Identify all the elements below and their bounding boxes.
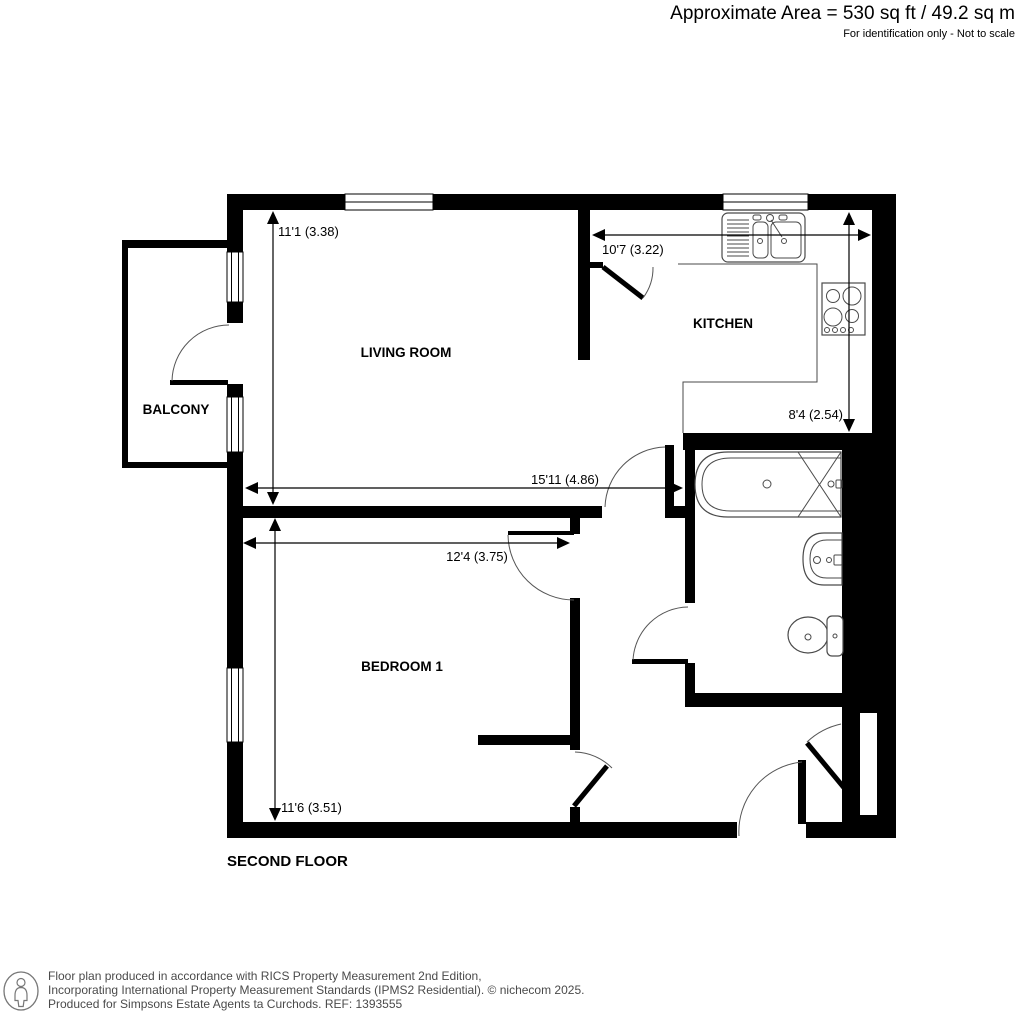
- dimension-living-width: [245, 482, 683, 494]
- wall: [570, 598, 580, 750]
- bedroom-label: BEDROOM 1: [361, 659, 443, 674]
- dimension-bedroom-depth: [269, 518, 281, 821]
- door-swing-arc: [172, 325, 229, 381]
- kitchen-label: KITCHEN: [693, 316, 753, 331]
- wall: [478, 735, 572, 745]
- door-swing-arc: [633, 607, 688, 660]
- toilet: [788, 616, 843, 656]
- wall: [570, 807, 580, 822]
- kitchen-door: [603, 267, 653, 298]
- door-swing-arc: [739, 762, 802, 836]
- wall: [683, 433, 872, 450]
- bedroom-width-label: 12'4 (3.75): [446, 549, 508, 564]
- person-icon: [2, 971, 42, 1013]
- balcony-outline: [122, 240, 227, 468]
- floor-plan: LIVING ROOM KITCHEN BALCONY BEDROOM 1 SE…: [0, 0, 1024, 1020]
- door-swing-arc: [605, 447, 665, 507]
- door-leaf: [170, 380, 228, 385]
- wall: [872, 194, 896, 444]
- kitchen-sink: [722, 213, 805, 262]
- hob: [822, 283, 865, 335]
- living-depth-label: 11'1 (3.38): [278, 224, 339, 239]
- window: [227, 668, 243, 742]
- door-leaf: [574, 766, 607, 806]
- wall: [808, 194, 872, 210]
- balcony-label: BALCONY: [143, 402, 210, 417]
- bathroom-door: [632, 607, 688, 664]
- wall: [806, 822, 896, 838]
- kitchen-width-label: 10'7 (3.22): [602, 242, 664, 257]
- footer-line-3: Produced for Simpsons Estate Agents ta C…: [48, 997, 584, 1011]
- wall: [243, 506, 602, 518]
- kitchen-depth-label: 8'4 (2.54): [788, 407, 843, 422]
- bedroom-entry-door: [574, 752, 612, 806]
- wall: [578, 210, 590, 360]
- wall: [685, 693, 847, 707]
- door-leaf: [665, 445, 674, 509]
- wall: [227, 194, 345, 210]
- door-swing-arc: [643, 267, 653, 298]
- entrance-door: [739, 760, 806, 836]
- door-swing-arc: [807, 724, 841, 742]
- kitchen-door-jamb: [590, 262, 603, 268]
- dimension-living-depth: [267, 211, 279, 505]
- wall: [685, 450, 695, 603]
- footer-line-2: Incorporating International Property Mea…: [48, 983, 584, 997]
- bath: [695, 452, 842, 517]
- wall: [227, 194, 243, 252]
- wall: [227, 452, 243, 668]
- balcony-door: [170, 325, 229, 385]
- wall: [685, 663, 695, 693]
- window: [227, 397, 243, 452]
- wall: [227, 302, 243, 323]
- window: [723, 194, 808, 210]
- dimension-bedroom-width: [243, 537, 570, 549]
- bedroom-depth-label: 11'6 (3.51): [281, 800, 342, 815]
- wall: [227, 384, 243, 397]
- living-room-label: LIVING ROOM: [361, 345, 452, 360]
- footer-disclaimer: Floor plan produced in accordance with R…: [48, 969, 584, 1011]
- door-leaf: [632, 659, 688, 664]
- cupboard-niche: [860, 713, 877, 815]
- window: [345, 194, 433, 210]
- wall: [227, 822, 737, 838]
- wall: [433, 194, 723, 210]
- floor-label: SECOND FLOOR: [227, 853, 348, 870]
- window: [227, 252, 243, 302]
- basin: [803, 533, 842, 585]
- living-width-label: 15'11 (4.86): [531, 472, 599, 487]
- door-leaf: [798, 760, 806, 824]
- footer-line-1: Floor plan produced in accordance with R…: [48, 969, 584, 983]
- door-leaf: [508, 531, 574, 535]
- hallway-door: [605, 445, 674, 509]
- door-leaf: [603, 267, 643, 298]
